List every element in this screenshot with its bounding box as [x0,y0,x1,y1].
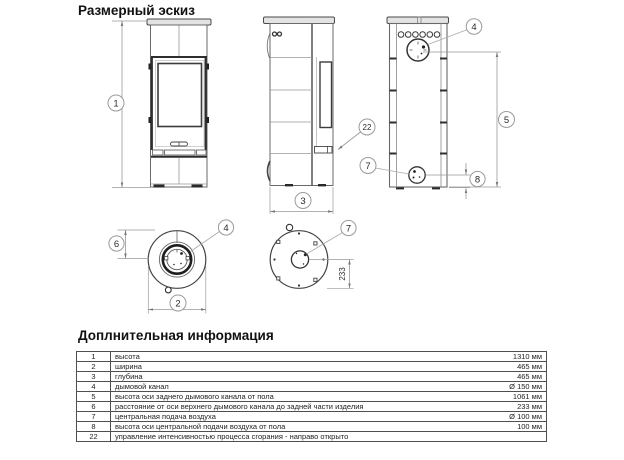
row-value: Ø 100 мм [509,412,542,421]
row-number: 5 [77,392,111,402]
callout-3-label: 3 [300,196,305,207]
table-row: 4дымовой каналØ 150 мм [77,382,547,392]
table-row: 7центральная подача воздухаØ 100 мм [77,412,547,422]
table-row: 2ширина465 мм [77,362,547,372]
row-value: Ø 150 мм [509,382,542,391]
side-view [264,17,335,186]
row-number: 4 [77,382,111,392]
dimension-depth: 3 [270,187,333,214]
row-description: дымовой канал [115,382,169,391]
table-row: 6расстояние от оси верхнего дымового кан… [77,402,547,412]
dimension-sketch-drawing: 1 3 [0,0,624,322]
dim-233-label: 233 [338,267,347,281]
table-row: 1высота1310 мм [77,352,547,362]
row-number: 7 [77,412,111,422]
row-number: 22 [77,432,111,442]
bottom-view-air [270,224,328,288]
row-content: глубина465 мм [111,372,547,382]
row-number: 8 [77,422,111,432]
callout-5-label: 5 [504,115,509,126]
table-row: 5высота оси заднего дымового канала от п… [77,392,547,402]
flue-outlet-back [407,39,429,61]
table-row: 22управление интенсивностью процесса сго… [77,432,547,442]
row-number: 2 [77,362,111,372]
dimension-height: 1 [108,21,150,188]
row-value: 233 мм [517,402,542,411]
callout-4-label: 4 [471,22,476,33]
row-number: 6 [77,402,111,412]
row-content: высота оси заднего дымового канала от по… [111,392,547,402]
table-row: 3глубина465 мм [77,372,547,382]
callout-7-label: 7 [365,161,370,172]
row-description: глубина [115,372,143,381]
door-hinge [207,117,210,123]
callout-control: 22 [338,119,375,150]
additional-info-table: 1высота1310 мм2ширина465 мм3глубина465 м… [76,351,547,442]
stove-foot [154,185,165,188]
side-door-glass [320,62,332,128]
stove-foot [285,184,293,186]
mount-tab [286,224,292,230]
row-description: высота оси центральной подачи воздуха от… [115,422,285,431]
top-view-flue [148,231,206,293]
row-content: высота1310 мм [111,352,547,362]
callout-2-label: 2 [175,299,180,310]
info-table-body: 1высота1310 мм2ширина465 мм3глубина465 м… [77,352,547,442]
spec-sheet-page: Размерный эскиз [0,0,624,460]
stove-foot [432,187,440,189]
row-value: 465 мм [517,372,542,381]
row-value: 1061 мм [513,392,542,401]
callout-7-bottom-label: 7 [346,224,351,235]
row-value: 1310 мм [513,352,542,361]
info-section-title: Доплнительная информация [78,328,274,343]
central-air-inlet-back [409,167,425,183]
row-content: высота оси центральной подачи воздуха от… [111,422,547,432]
central-air-inlet-bottom [291,251,308,268]
row-description: ширина [115,362,142,371]
front-view [147,19,211,188]
callout-4-top-label: 4 [223,223,228,234]
row-description: расстояние от оси верхнего дымового кана… [115,402,363,411]
door-hinge [149,117,152,123]
side-top-plate [264,17,335,24]
row-content: дымовой каналØ 150 мм [111,382,547,392]
door-hinge [149,64,152,70]
row-content: расстояние от оси верхнего дымового кана… [111,402,547,412]
row-description: высота оси заднего дымового канала от по… [115,392,274,401]
door-hinge [207,64,210,70]
row-description: управление интенсивностью процесса сгора… [115,432,348,441]
callout-22-label: 22 [363,123,372,132]
stove-foot [192,185,203,188]
row-content: центральная подача воздухаØ 100 мм [111,412,547,422]
row-number: 3 [77,372,111,382]
row-description: высота [115,352,140,361]
door-glass [158,64,202,127]
row-content: управление интенсивностью процесса сгора… [111,432,547,442]
row-description: центральная подача воздуха [115,412,216,421]
stove-foot [318,184,326,186]
callout-1-label: 1 [113,99,118,110]
row-value: 465 мм [517,362,542,371]
callout-8-label: 8 [475,175,480,186]
table-row: 8высота оси центральной подачи воздуха о… [77,422,547,432]
callout-flue-top: 4 [191,220,234,252]
callout-6-label: 6 [114,239,119,250]
back-view [387,17,449,189]
row-number: 1 [77,352,111,362]
row-content: ширина465 мм [111,362,547,372]
stove-foot [396,187,404,189]
front-top-plate [147,19,211,25]
combustion-control-lever [315,147,333,154]
bottom-notch [165,287,171,293]
row-value: 100 мм [517,422,542,431]
